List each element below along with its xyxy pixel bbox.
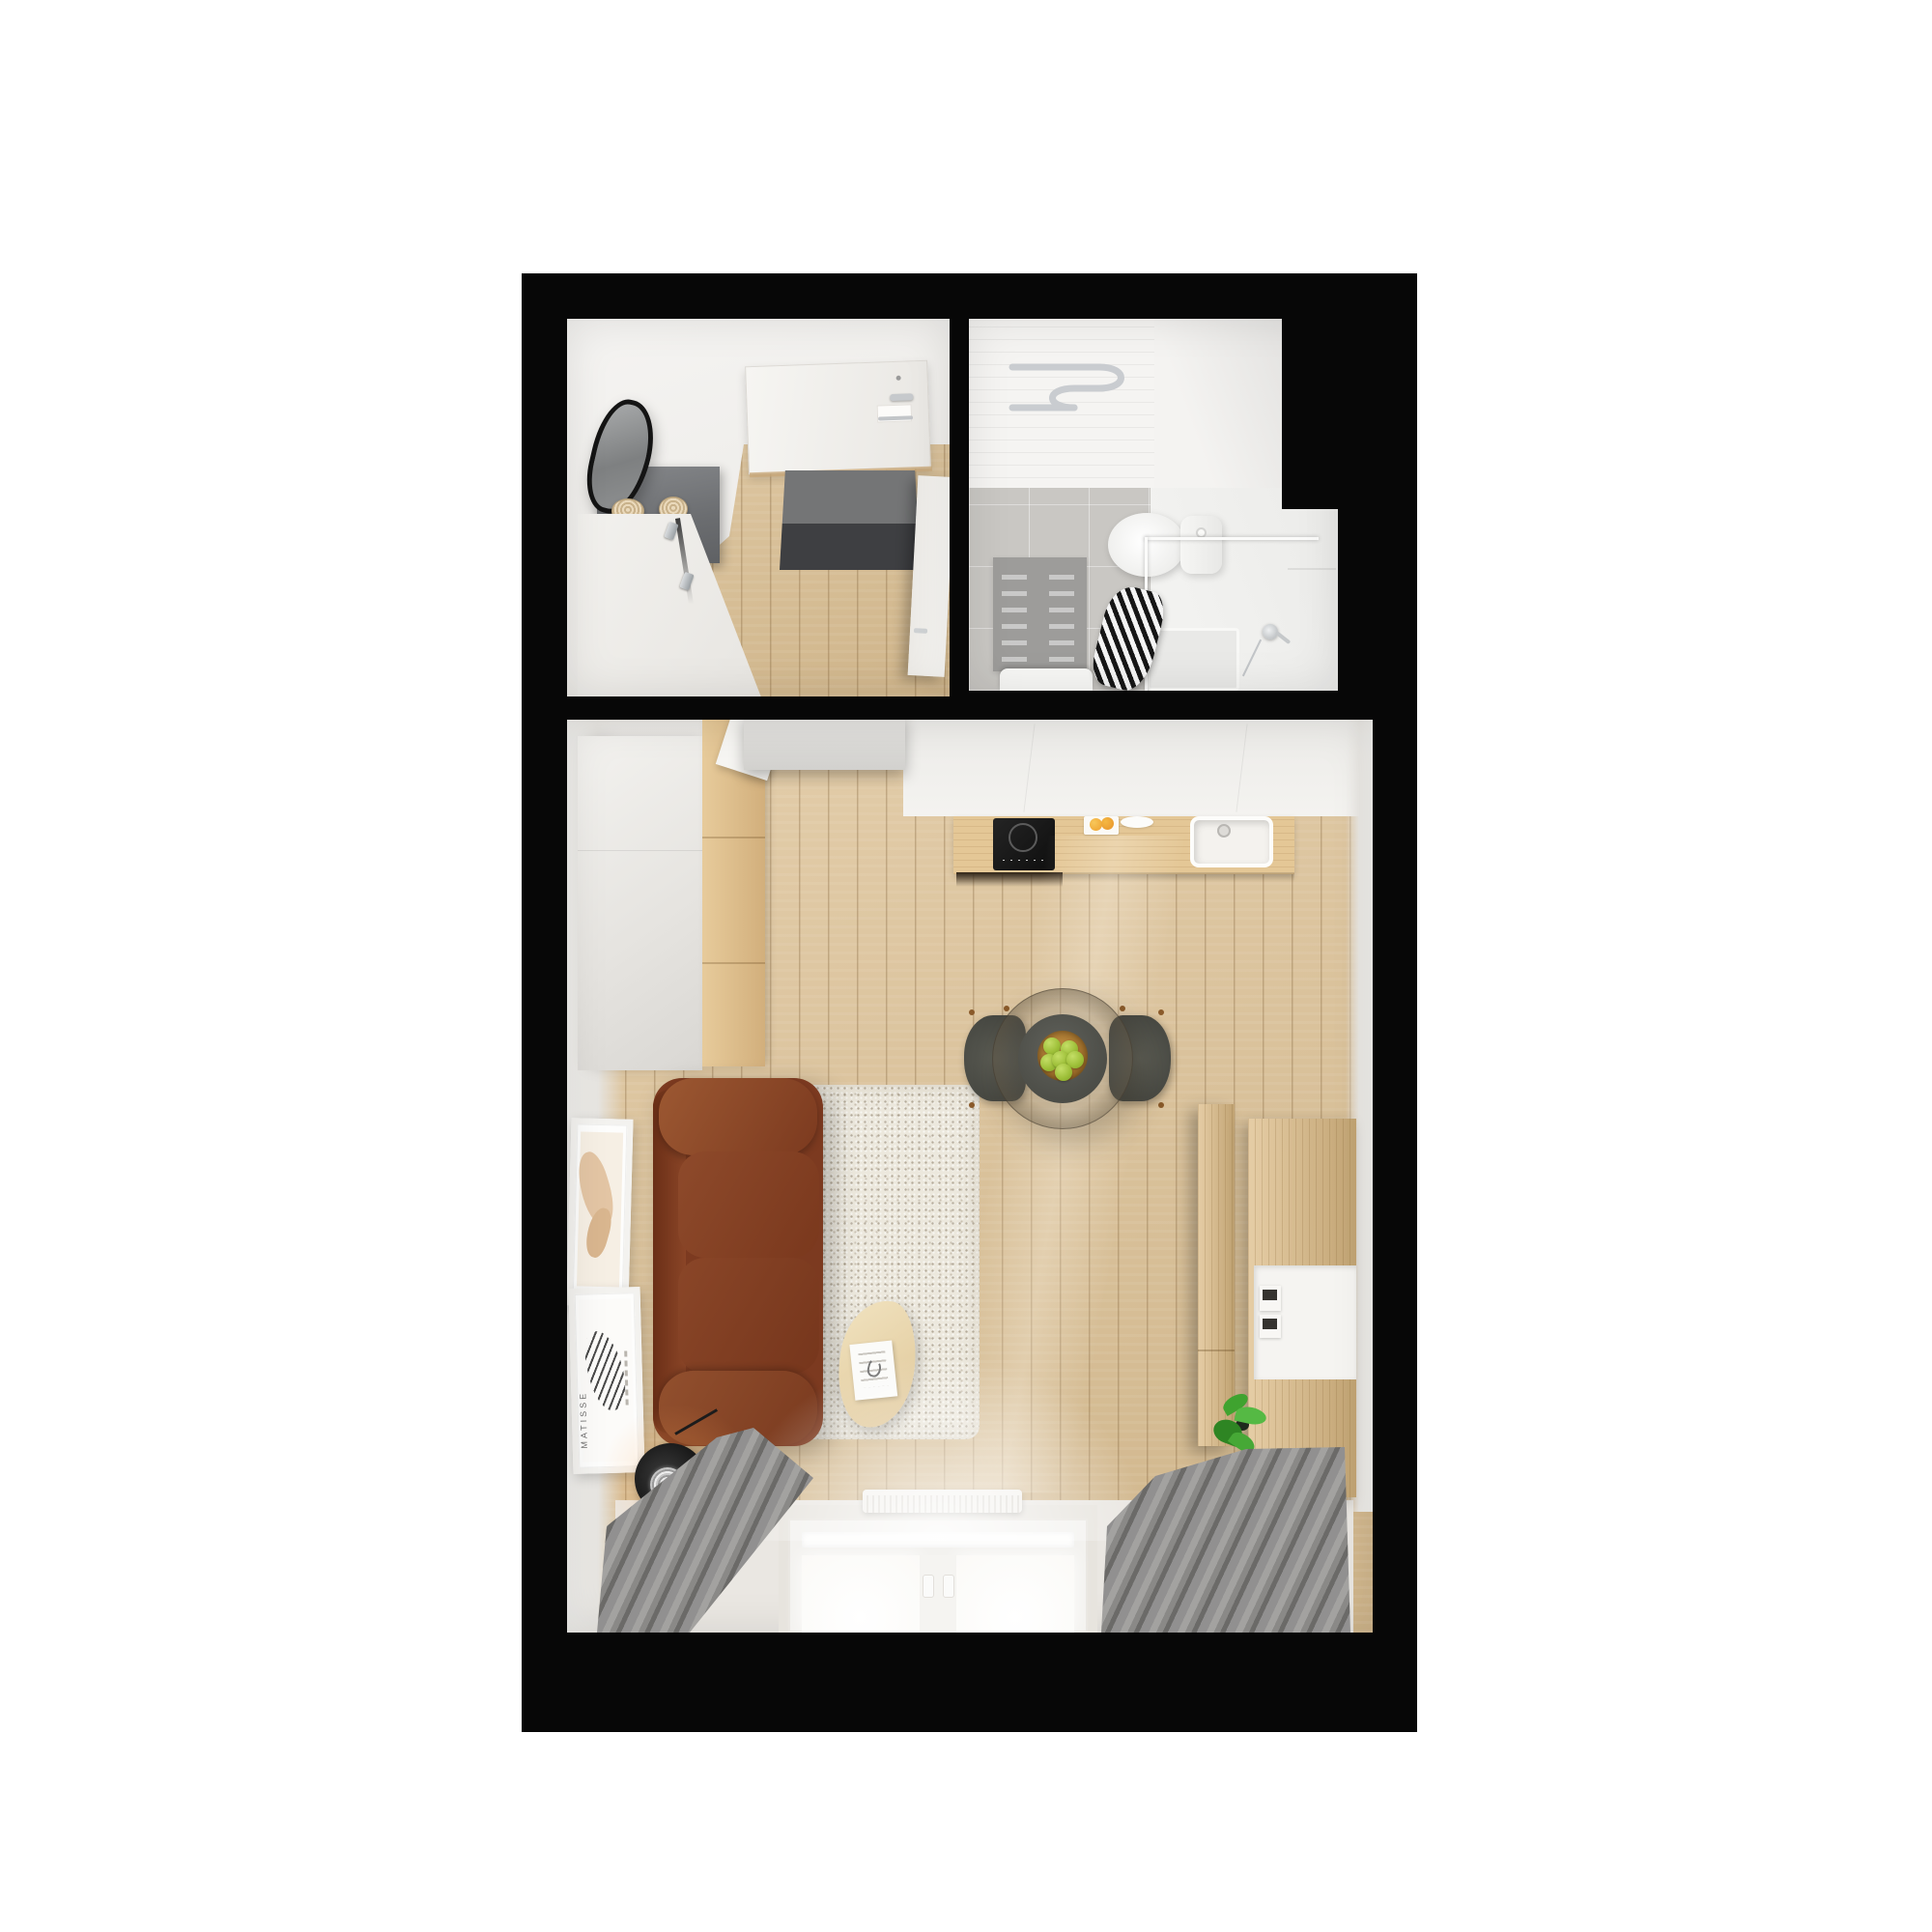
bath-mat	[993, 557, 1087, 671]
mat-pattern	[1049, 563, 1074, 666]
entry-wall-cabinet	[744, 720, 905, 770]
tall-white-cabinet	[578, 736, 702, 1070]
lemon	[1101, 817, 1114, 830]
sofa	[653, 1078, 823, 1446]
green-apple	[1055, 1064, 1072, 1081]
sofa-armrest	[659, 1078, 817, 1155]
drawer	[1260, 1315, 1281, 1338]
cabinet-seam	[1236, 724, 1247, 811]
chair-leg	[969, 1009, 975, 1015]
door-handle	[914, 628, 927, 634]
chair-leg	[1158, 1009, 1164, 1015]
room-living: MATISSE	[567, 720, 1373, 1633]
plate	[1121, 816, 1153, 828]
chair-leg	[1158, 1102, 1164, 1108]
towel-radiator	[1007, 357, 1142, 419]
cabinet-seam	[578, 850, 702, 851]
bath-counter-edge	[1288, 568, 1336, 570]
kitchen-sink	[1190, 816, 1273, 867]
bench-seam	[702, 962, 765, 964]
kitchen-upper-wall	[903, 720, 1373, 816]
drawer-vent	[1263, 1319, 1277, 1329]
media-cabinet	[1198, 1104, 1235, 1446]
magazine	[849, 1341, 897, 1401]
mat-pattern	[1002, 563, 1027, 666]
shower-glass-panel	[1145, 537, 1319, 540]
induction-hob	[993, 818, 1055, 870]
counter-shadow	[956, 872, 1063, 887]
chair-leg	[1120, 1006, 1125, 1011]
sink-drain-icon	[1217, 824, 1231, 838]
window-handle	[923, 1575, 934, 1598]
drawer-niche	[1254, 1265, 1356, 1379]
shower-tray	[1147, 628, 1239, 691]
doormat-light-half	[780, 470, 921, 524]
radiator	[863, 1490, 1022, 1513]
peephole-icon	[896, 376, 901, 381]
room-hallway	[567, 319, 950, 696]
window-transom	[802, 1532, 1074, 1548]
drawer	[1260, 1286, 1281, 1311]
room-bathroom	[969, 319, 1338, 691]
poster-abstract	[567, 1118, 634, 1307]
toilet-cistern	[1180, 516, 1222, 574]
washing-machine	[1000, 668, 1093, 691]
doormat	[780, 470, 921, 570]
counter-shadow	[1063, 872, 1294, 882]
drawer-vent	[1263, 1290, 1277, 1300]
hob-controls	[1000, 859, 1048, 862]
cabinet-seam	[1198, 1350, 1235, 1351]
wall-notch	[1282, 319, 1338, 509]
door-handle	[890, 393, 913, 401]
window-pane	[802, 1555, 920, 1633]
lemon	[1090, 818, 1102, 831]
cabinet-seam	[1023, 724, 1035, 811]
floor-plan-render: MATISSE	[0, 0, 1932, 1932]
bench-seam	[702, 837, 765, 838]
window-handle	[943, 1575, 954, 1598]
window	[779, 1505, 1097, 1633]
hob-ring-icon	[1009, 823, 1037, 852]
doormat-dark-half	[780, 524, 921, 570]
media-cabinet	[1248, 1119, 1356, 1497]
sofa-seat-cushion	[678, 1151, 819, 1258]
chair-leg	[1004, 1006, 1009, 1011]
window-pane	[956, 1555, 1074, 1633]
entry-door	[745, 360, 931, 475]
sofa-seat-cushion	[678, 1258, 819, 1374]
chair-leg	[969, 1102, 975, 1108]
